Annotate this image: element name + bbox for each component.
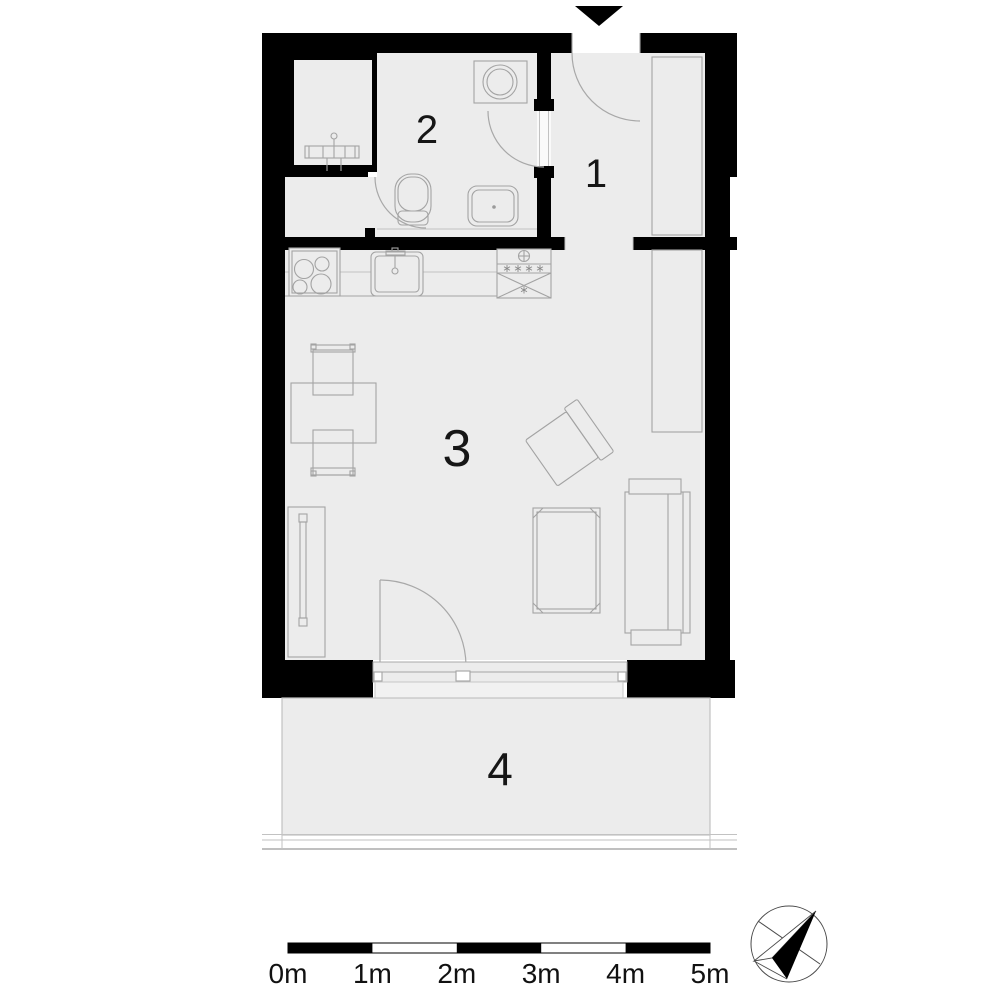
wall-storage-nub <box>365 228 375 237</box>
north-compass-icon <box>751 906 827 982</box>
room-label-4: 4 <box>487 743 513 795</box>
kitchen-sink <box>371 248 423 296</box>
stove <box>289 248 340 296</box>
floors <box>285 53 705 660</box>
scale-label-3m: 3m <box>522 958 561 989</box>
scale-bar: 0m 1m 2m 3m 4m 5m <box>269 943 730 989</box>
wall-top-left <box>262 33 572 53</box>
floor-plan-canvas: 1 2 3 4 0m 1m 2m 3m 4m 5m <box>0 0 1000 1000</box>
entrance-arrow-icon <box>575 6 623 26</box>
balcony-door-handle <box>456 671 470 681</box>
wall-bath-hall-post-top <box>534 99 554 111</box>
sofa-armrest <box>631 630 681 645</box>
washing-machine <box>474 61 527 103</box>
wall-bath-hall-lower <box>537 176 551 237</box>
room-label-1: 1 <box>585 152 607 196</box>
room-label-2: 2 <box>416 108 438 152</box>
wall-bottom-left-pier <box>262 660 373 698</box>
balcony-threshold <box>375 682 623 698</box>
wall-bottom-right-pier <box>627 660 735 698</box>
storage-room-floor <box>285 177 368 237</box>
wall-right-upper <box>705 33 737 177</box>
sofa-armrest <box>629 479 681 494</box>
balcony-railing <box>262 835 737 850</box>
hall-living-opening <box>565 237 633 250</box>
wall-niche-left <box>285 53 294 165</box>
room-3-floor <box>285 249 705 660</box>
wall-left <box>262 33 285 660</box>
scale-label-2m: 2m <box>437 958 476 989</box>
scale-segment <box>288 943 372 953</box>
hall-wardrobe <box>652 57 702 235</box>
wall-storage-top <box>283 170 368 177</box>
wall-mid-right <box>633 237 737 250</box>
wall-niche-top <box>294 53 372 60</box>
scale-segment <box>626 943 710 953</box>
scale-label-0m: 0m <box>269 958 308 989</box>
wall-bath-hall-upper <box>537 53 551 101</box>
room-label-3: 3 <box>443 420 472 478</box>
scale-segment <box>457 943 541 953</box>
fridge-freezer <box>497 249 551 298</box>
scale-label-5m: 5m <box>691 958 730 989</box>
living-wardrobe <box>652 250 702 432</box>
scale-label-1m: 1m <box>353 958 392 989</box>
scale-label-4m: 4m <box>606 958 645 989</box>
entrance-opening <box>572 33 640 53</box>
wall-niche-right <box>372 53 377 172</box>
floor-plan: 1 2 3 4 0m 1m 2m 3m 4m 5m <box>0 0 1000 1000</box>
